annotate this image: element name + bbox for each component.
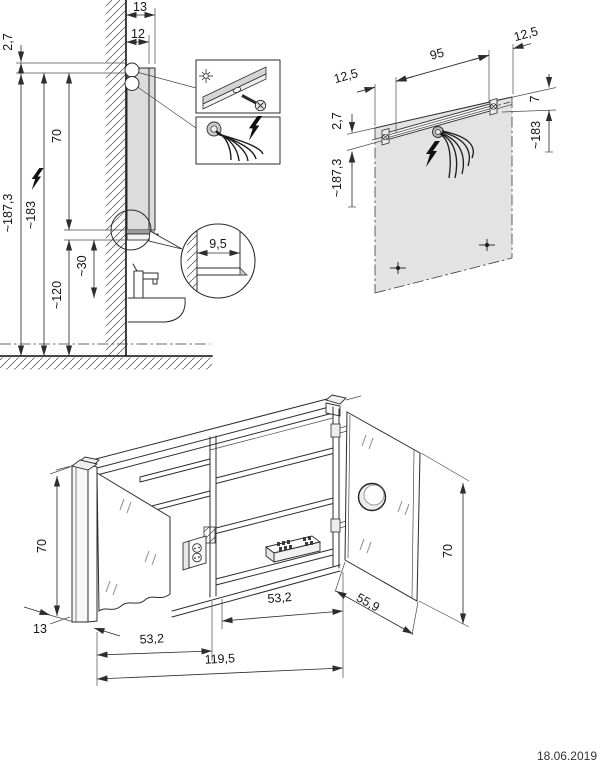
figure-side-view: 13 12 2,7 ~187,3 ~183 70 ~120 ~30 bbox=[0, 0, 280, 370]
detail-screw-box bbox=[196, 60, 280, 113]
dim-total-height: ~187,3 bbox=[330, 159, 344, 198]
technical-drawing-sheet: 13 12 2,7 ~187,3 ~183 70 ~120 ~30 bbox=[0, 0, 600, 767]
dim-rail-drop: 7 bbox=[528, 95, 542, 102]
dim-height-right: 70 bbox=[441, 544, 455, 558]
dim-left-door-width: 53,2 bbox=[139, 631, 164, 646]
right-mirror-door bbox=[345, 412, 420, 601]
power-socket bbox=[183, 536, 206, 570]
dim-door-diag-width: 55,9 bbox=[354, 590, 382, 614]
figure-cabinet-open-view: 70 13 53,2 53,2 119,5 55,9 70 bbox=[24, 395, 469, 686]
left-mirror-door bbox=[72, 460, 170, 622]
dim-top-offset: 2,7 bbox=[1, 33, 15, 50]
dim-connection-height: ~183 bbox=[24, 201, 38, 229]
detail-cable-box bbox=[196, 116, 280, 164]
dim-total-width: 119,5 bbox=[204, 651, 235, 667]
dim-total-height: ~187,3 bbox=[1, 194, 15, 233]
dim-side-depth: 13 bbox=[33, 622, 47, 636]
hinge-block bbox=[331, 424, 340, 437]
cable-callout-circle bbox=[125, 77, 139, 91]
dim-height-left: 70 bbox=[35, 539, 49, 553]
shelf bbox=[216, 498, 333, 534]
callout-wedge bbox=[149, 231, 182, 249]
faucet bbox=[133, 264, 158, 298]
screw-icon bbox=[383, 134, 389, 140]
lightning-bolt-icon bbox=[32, 168, 44, 190]
screw-icon bbox=[491, 104, 497, 110]
figure-wall-mounting-view: 2,7 ~187,3 12,5 95 12,5 7 ~183 bbox=[330, 24, 556, 293]
dim-cabinet-height: 70 bbox=[50, 129, 64, 143]
recess-detail-circle: 9,5 bbox=[181, 224, 255, 298]
dim-top-offset: 2,7 bbox=[330, 112, 344, 129]
hinge-block bbox=[331, 519, 340, 532]
dim-right-door-width: 53,2 bbox=[267, 590, 293, 606]
dim-top-depth: 13 bbox=[133, 0, 147, 14]
dim-rail-width: 95 bbox=[428, 46, 445, 63]
dim-carcass-depth: 12 bbox=[131, 27, 145, 41]
dim-lower-height: ~120 bbox=[50, 281, 64, 309]
shelf bbox=[140, 459, 210, 482]
washbasin bbox=[128, 264, 185, 322]
date-label: 18.06.2019 bbox=[537, 749, 597, 763]
mirror-surface bbox=[97, 473, 170, 611]
dim-connection-height: ~183 bbox=[529, 121, 543, 149]
rail-callout-circle bbox=[125, 63, 139, 77]
wall-hatch bbox=[106, 0, 126, 356]
dim-recess-depth: 9,5 bbox=[209, 237, 226, 251]
dim-basin-gap: ~30 bbox=[75, 255, 89, 276]
shelf bbox=[216, 448, 333, 484]
floor-hatch bbox=[0, 358, 212, 370]
dim-offset-right: 12,5 bbox=[512, 24, 539, 44]
dim-offset-left: 12,5 bbox=[332, 66, 359, 86]
drawing-canvas: 13 12 2,7 ~187,3 ~183 70 ~120 ~30 bbox=[0, 0, 600, 767]
